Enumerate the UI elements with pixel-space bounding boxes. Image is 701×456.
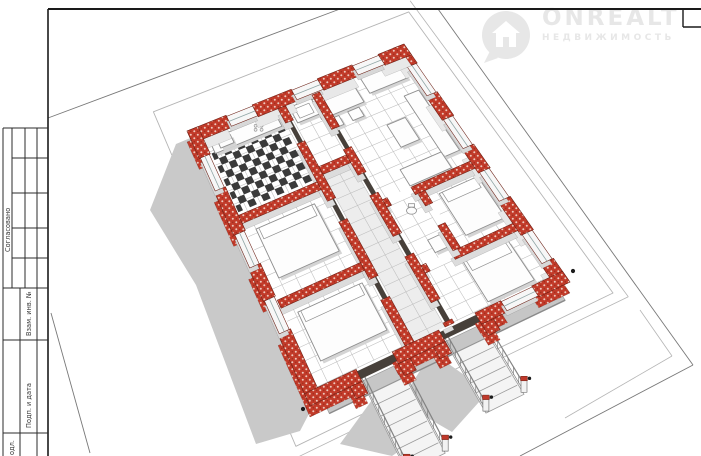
titleblock-label-soglasovano: Согласовано [4, 208, 12, 252]
house-plan-layer [48, 1, 693, 456]
titleblock-label-podp: Подп. и дата [25, 383, 33, 428]
floorplan-drawing: Согласовано Взам. инв. № Подп. и дата од… [0, 0, 701, 456]
titleblock-label-inv: одл. [8, 440, 16, 455]
drawing-sheet: ONREALT НЕДВИЖИМОСТЬ [0, 0, 701, 456]
title-block-labels: Согласовано Взам. инв. № Подп. и дата од… [4, 208, 33, 455]
titleblock-label-vzam: Взам. инв. № [25, 291, 33, 336]
